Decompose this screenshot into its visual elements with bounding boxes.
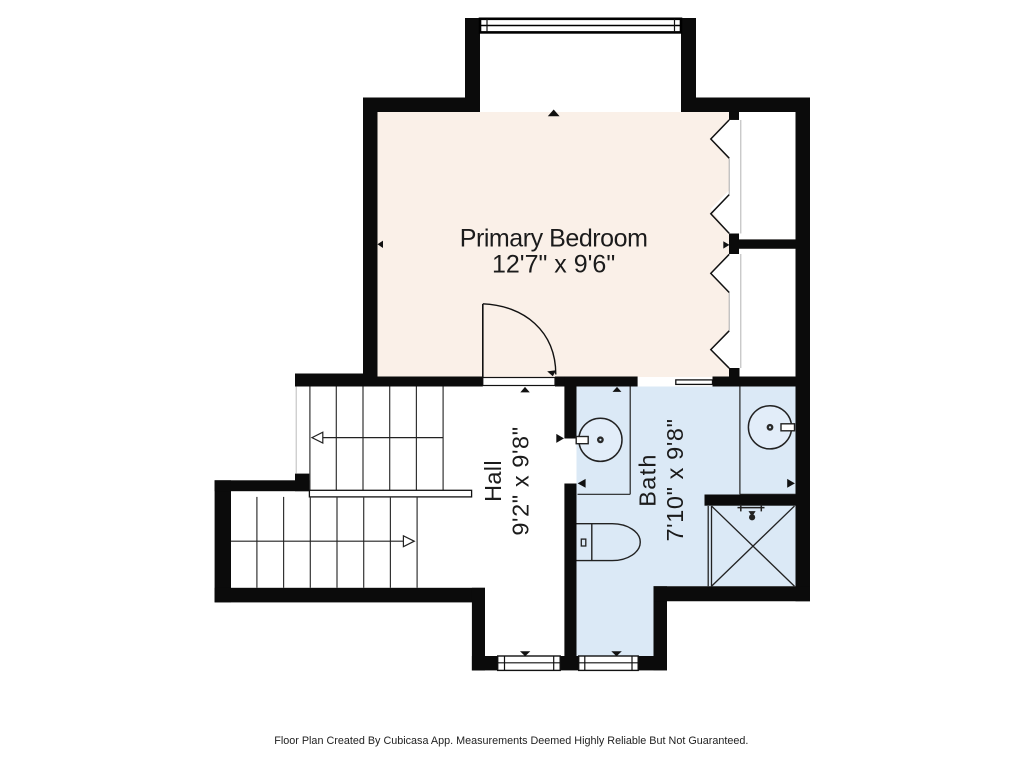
svg-text:12'7" x 9'6": 12'7" x 9'6" <box>492 251 615 279</box>
svg-text:Floor Plan Created By Cubicasa: Floor Plan Created By Cubicasa App. Meas… <box>274 735 748 747</box>
svg-text:Primary Bedroom: Primary Bedroom <box>460 225 648 253</box>
svg-text:Hall: Hall <box>480 460 506 502</box>
svg-text:7'10" x 9'8": 7'10" x 9'8" <box>662 418 688 541</box>
svg-text:9'2" x 9'8": 9'2" x 9'8" <box>508 426 534 535</box>
svg-text:Bath: Bath <box>635 453 661 507</box>
